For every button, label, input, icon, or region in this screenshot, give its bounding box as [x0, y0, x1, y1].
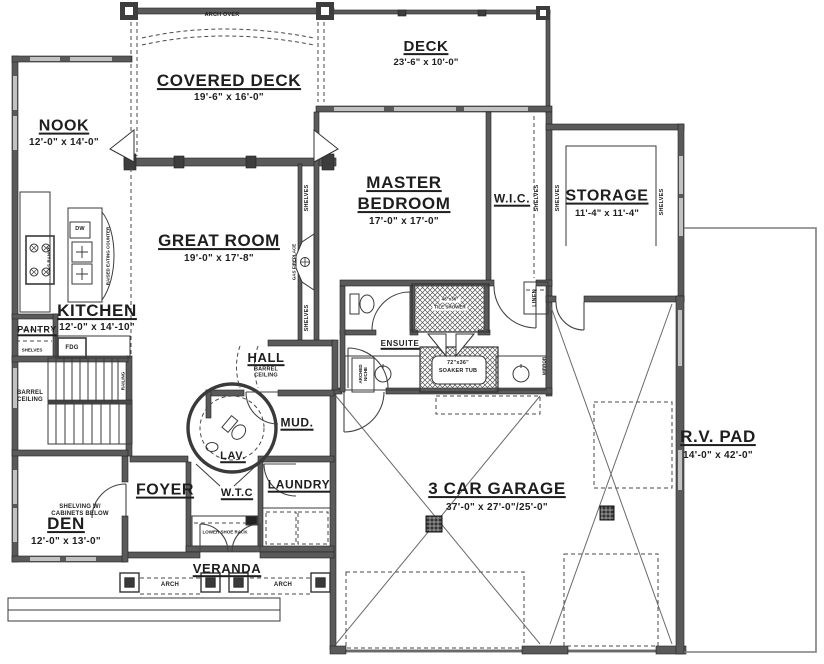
note-mirror: MIRROR — [543, 357, 548, 375]
room-label-veranda: VERANDA — [193, 562, 261, 576]
dims-nook: 12'-0" x 14'-0" — [29, 138, 99, 149]
room-label-foyer: FOYER — [136, 483, 194, 500]
note-tub-dims: 72"x36" — [445, 361, 471, 367]
room-label-nook: NOOK — [39, 119, 89, 136]
room-label-pantry: PANTRY — [17, 325, 57, 334]
room-label-lav: LAV. — [220, 451, 246, 463]
room-label-wic: W.I.C. — [494, 193, 530, 206]
dims-master: 17'-0" x 17'-0" — [369, 217, 439, 228]
note-linen: LINEN — [533, 289, 539, 307]
dims-rv-pad: 14'-0" x 42'-0" — [683, 451, 753, 462]
note-shelving-cabinets: SHELVING W/ CABINETS BELOW — [51, 504, 108, 518]
note-gas-range: GAS RANGE — [48, 246, 53, 273]
note-shower-name: TILE SHOWER — [432, 306, 467, 311]
note-barrel-ceiling-stairs: BARREL CEILING — [17, 390, 43, 404]
room-label-covered-deck: COVERED DECK — [157, 72, 301, 90]
note-shelves-wic: SHELVES — [535, 185, 541, 212]
note-pantry-shelves: SHELVES — [22, 349, 43, 354]
dims-great-room: 19'-0" x 17'-8" — [184, 254, 254, 265]
note-arched-niche: ARCHED NICHE — [358, 364, 368, 383]
dims-den: 12'-0" x 13'-0" — [31, 537, 101, 548]
note-shower-dims: 48"x36" — [440, 298, 461, 303]
floor-plan: COVERED DECK 19'-6" x 16'-0" DECK 23'-6"… — [0, 0, 824, 664]
note-arch-left: ARCH — [161, 582, 179, 588]
note-raised-eating-counter: RAISED EATING COUNTER — [107, 227, 112, 285]
note-fdg: FDG — [65, 345, 78, 351]
note-shelves-storage-left: SHELVES — [556, 185, 562, 212]
room-label-rv-pad: R.V. PAD — [680, 428, 756, 446]
room-label-great-room: GREAT ROOM — [158, 232, 280, 250]
note-tub-name: SOAKER TUB — [437, 369, 479, 375]
dims-kitchen: 12'-0" x 14'-10" — [59, 323, 135, 334]
dims-storage: 11'-4" x 11'-4" — [575, 209, 639, 219]
note-arch-right: ARCH — [274, 582, 292, 588]
room-label-mud: MUD. — [280, 417, 313, 430]
dims-garage: 37'-0" x 27'-0"/25'-0" — [446, 503, 548, 514]
note-dw: DW — [75, 227, 85, 233]
room-label-wtc: W.T.C — [221, 488, 253, 500]
note-shelves-strip-top: SHELVES — [305, 185, 311, 212]
room-label-master-line1: MASTER — [366, 174, 441, 192]
room-label-ensuite: ENSUITE — [381, 340, 420, 348]
room-label-laundry: LAUNDRY — [268, 479, 330, 492]
dims-deck: 23'-6" x 10'-0" — [393, 58, 458, 68]
note-shelves-strip-bottom: SHELVES — [305, 305, 311, 332]
room-label-deck: DECK — [404, 39, 449, 55]
room-label-master-line2: BEDROOM — [358, 195, 451, 213]
note-shelves-storage-right: SHELVES — [660, 189, 666, 216]
note-barrel-ceiling-hall: BARREL CEILING — [254, 367, 278, 380]
note-arch-over: ARCH OVER — [205, 13, 240, 19]
room-label-hall: HALL — [247, 351, 284, 365]
room-label-storage: STORAGE — [565, 189, 648, 206]
dims-covered-deck: 19'-6" x 16'-0" — [194, 93, 264, 104]
room-label-garage: 3 CAR GARAGE — [428, 480, 566, 498]
note-lower-shoe-rack: LOWER SHOE RACK — [203, 531, 248, 536]
note-railing: RAILING — [122, 372, 127, 391]
room-label-kitchen: KITCHEN — [57, 302, 137, 320]
note-gas-fireplace: GAS FIREPLACE — [293, 244, 298, 281]
